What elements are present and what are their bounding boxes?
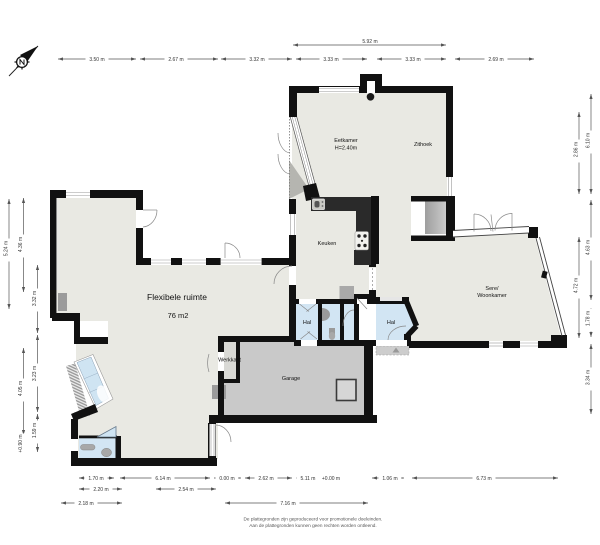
svg-text:6.73 m: 6.73 m bbox=[476, 476, 491, 482]
svg-text:2.86 m: 2.86 m bbox=[574, 142, 580, 157]
svg-text:1.06 m: 1.06 m bbox=[382, 476, 397, 482]
svg-text:2.67 m: 2.67 m bbox=[168, 57, 183, 63]
svg-text:Woonkamer: Woonkamer bbox=[477, 293, 507, 299]
svg-text:5.92 m: 5.92 m bbox=[362, 39, 377, 45]
svg-text:Werkkast: Werkkast bbox=[218, 358, 241, 364]
svg-text:3.32 m: 3.32 m bbox=[249, 57, 264, 63]
svg-text:Eetkamer: Eetkamer bbox=[334, 138, 358, 144]
svg-text:3.34 m: 3.34 m bbox=[586, 370, 592, 385]
svg-text:6.10 m: 6.10 m bbox=[586, 133, 592, 148]
svg-text:Flexibele ruimte: Flexibele ruimte bbox=[147, 292, 207, 302]
svg-text:2.18 m: 2.18 m bbox=[78, 501, 93, 507]
svg-text:2.69 m: 2.69 m bbox=[488, 57, 503, 63]
svg-text:0.00 m: 0.00 m bbox=[219, 476, 234, 482]
svg-text:4.72 m: 4.72 m bbox=[574, 278, 580, 293]
svg-text:5.11 m: 5.11 m bbox=[301, 476, 316, 482]
svg-text:3.23 m: 3.23 m bbox=[32, 366, 38, 381]
svg-text:Aan de plattegronden kunnen ge: Aan de plattegronden kunnen geen rechten… bbox=[249, 523, 376, 528]
svg-text:2.20 m: 2.20 m bbox=[93, 487, 108, 493]
svg-text:Zithoek: Zithoek bbox=[414, 142, 432, 148]
svg-text:76 m2: 76 m2 bbox=[168, 311, 189, 320]
svg-text:6.14 m: 6.14 m bbox=[155, 476, 170, 482]
svg-text:+0.90 m: +0.90 m bbox=[18, 434, 24, 452]
svg-text:5.24 m: 5.24 m bbox=[4, 241, 10, 256]
svg-text:Garage: Garage bbox=[282, 376, 300, 382]
svg-text:3.33 m: 3.33 m bbox=[405, 57, 420, 63]
svg-text:Hal: Hal bbox=[387, 320, 395, 326]
svg-text:Sere/: Sere/ bbox=[485, 286, 499, 292]
svg-text:1.70 m: 1.70 m bbox=[88, 476, 103, 482]
svg-text:4.63 m: 4.63 m bbox=[586, 240, 592, 255]
svg-text:4.36 m: 4.36 m bbox=[18, 237, 24, 252]
svg-text:1.59 m: 1.59 m bbox=[32, 423, 38, 438]
svg-text:3.33 m: 3.33 m bbox=[323, 57, 338, 63]
svg-text:2.62 m: 2.62 m bbox=[258, 476, 273, 482]
svg-text:Hal: Hal bbox=[303, 320, 311, 326]
svg-text:Keuken: Keuken bbox=[318, 241, 337, 247]
svg-text:1.78 m: 1.78 m bbox=[586, 311, 592, 326]
svg-text:7.16 m: 7.16 m bbox=[280, 501, 295, 507]
svg-text:H=2.40m: H=2.40m bbox=[335, 146, 358, 152]
svg-text:2.54 m: 2.54 m bbox=[178, 487, 193, 493]
svg-text:4.05 m: 4.05 m bbox=[18, 381, 24, 396]
svg-text:3.32 m: 3.32 m bbox=[32, 291, 38, 306]
svg-text:De plattegronden zijn geproduc: De plattegronden zijn geproduceerd voor … bbox=[244, 517, 383, 522]
svg-text:+0.00 m: +0.00 m bbox=[322, 476, 340, 482]
svg-text:3.50 m: 3.50 m bbox=[89, 57, 104, 63]
